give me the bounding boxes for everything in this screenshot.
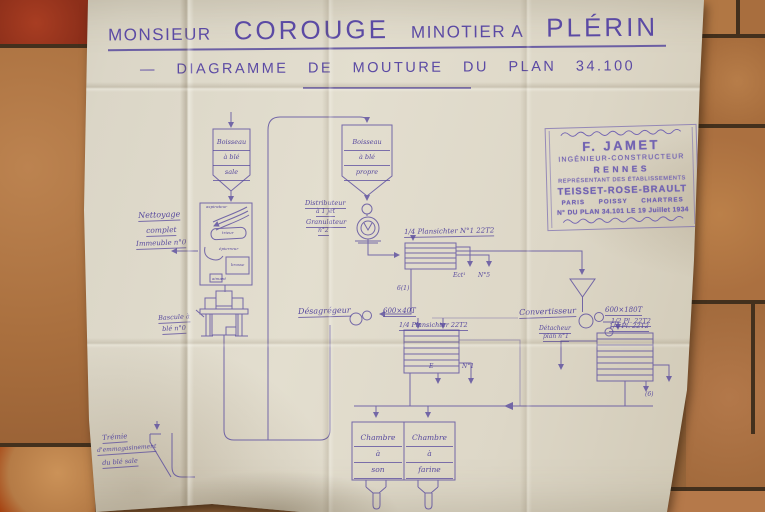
annotation: 6(1) bbox=[397, 286, 409, 292]
label-cleaning: complet bbox=[146, 226, 177, 237]
paper-sheet: MONSIEUR COROUGE MINOTIER A PLÉRIN — DIA… bbox=[0, 0, 765, 512]
label-cleaning-machine: épierreur bbox=[219, 247, 238, 251]
label-desagregeur: Désagrégeur bbox=[298, 307, 351, 318]
label-clean-wheat-bin: Boisseau à blé propre bbox=[344, 136, 390, 181]
photo-of-milling-diagram: MONSIEUR COROUGE MINOTIER A PLÉRIN — DIA… bbox=[0, 0, 765, 512]
annotation: N°5 bbox=[478, 273, 490, 279]
label-detacheur: plan n°1 bbox=[543, 334, 569, 342]
label-convertisseur: Convertisseur bbox=[519, 307, 576, 319]
annotation: Ect¹ bbox=[453, 273, 466, 279]
collection-line bbox=[354, 402, 653, 417]
label-cleaning-machine: trieur bbox=[222, 231, 234, 235]
label-storage-hopper: Trémie bbox=[102, 433, 128, 444]
annotation: (6) bbox=[645, 392, 654, 398]
label-desagregeur-spec: 600×40T bbox=[383, 308, 416, 317]
weigher-shape bbox=[196, 291, 248, 336]
label-weigher: blé n°0 bbox=[162, 325, 186, 335]
label-dirty-wheat-bin: Boisseau à blé sale bbox=[213, 136, 250, 181]
label-plansichter2: 1/4 Plansichter 22T2 bbox=[399, 322, 468, 331]
storage-hopper-shape bbox=[150, 421, 195, 477]
label-plansichter1: 1/4 Plansichter N°1 22T2 bbox=[404, 227, 494, 238]
annotation: N°1 bbox=[462, 364, 474, 370]
label-distributor: à 1 jet bbox=[316, 209, 335, 217]
label-granulator: n°2 bbox=[318, 228, 329, 236]
label-cleaning-machine: aspirateur bbox=[206, 205, 227, 209]
label-chamber-flour: Chambre à farine bbox=[406, 431, 453, 479]
annotation: E bbox=[429, 364, 433, 370]
label-chamber-bran: Chambre à son bbox=[354, 431, 402, 479]
label-cleaning: Nettoyage bbox=[138, 211, 180, 222]
label-cleaning-machine: brosse bbox=[231, 263, 244, 267]
paper-wrap: MONSIEUR COROUGE MINOTIER A PLÉRIN — DIA… bbox=[0, 0, 765, 512]
label-plansichter3: 1/4 Pl. 22T2 bbox=[609, 323, 649, 332]
label-cleaning: Immeuble n°0 bbox=[136, 239, 187, 250]
granulator-shape bbox=[355, 217, 399, 255]
label-weigher: Bascule à bbox=[158, 313, 190, 323]
label-convertisseur-spec: 600×180T bbox=[605, 307, 642, 316]
label-cleaning-machine: aimant bbox=[212, 277, 226, 281]
